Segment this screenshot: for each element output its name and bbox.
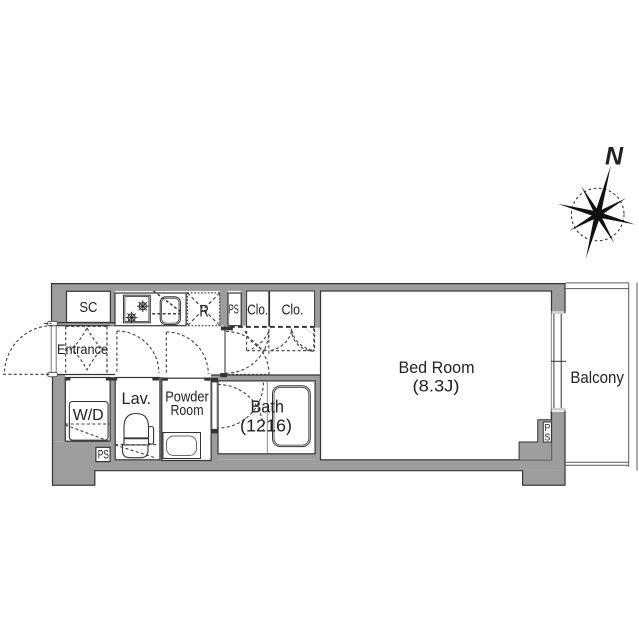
svg-text:SC: SC (79, 299, 97, 316)
svg-text:Entrance: Entrance (57, 342, 108, 357)
svg-text:(1216): (1216) (240, 416, 292, 436)
svg-text:W/D: W/D (73, 407, 104, 424)
svg-text:N: N (605, 143, 624, 171)
svg-text:Room: Room (171, 403, 204, 419)
svg-text:Clo.: Clo. (282, 302, 304, 318)
svg-text:Bed Room: Bed Room (399, 358, 475, 377)
svg-text:R: R (199, 301, 209, 320)
svg-text:PS: PS (229, 302, 239, 317)
svg-text:Lav.: Lav. (122, 389, 152, 408)
svg-text:S: S (545, 433, 551, 444)
svg-text:PS: PS (98, 447, 109, 461)
svg-text:Balcony: Balcony (570, 368, 624, 387)
svg-text:Clo.: Clo. (247, 302, 268, 318)
svg-text:(8.3J): (8.3J) (413, 377, 460, 396)
svg-text:Bath: Bath (250, 397, 284, 417)
